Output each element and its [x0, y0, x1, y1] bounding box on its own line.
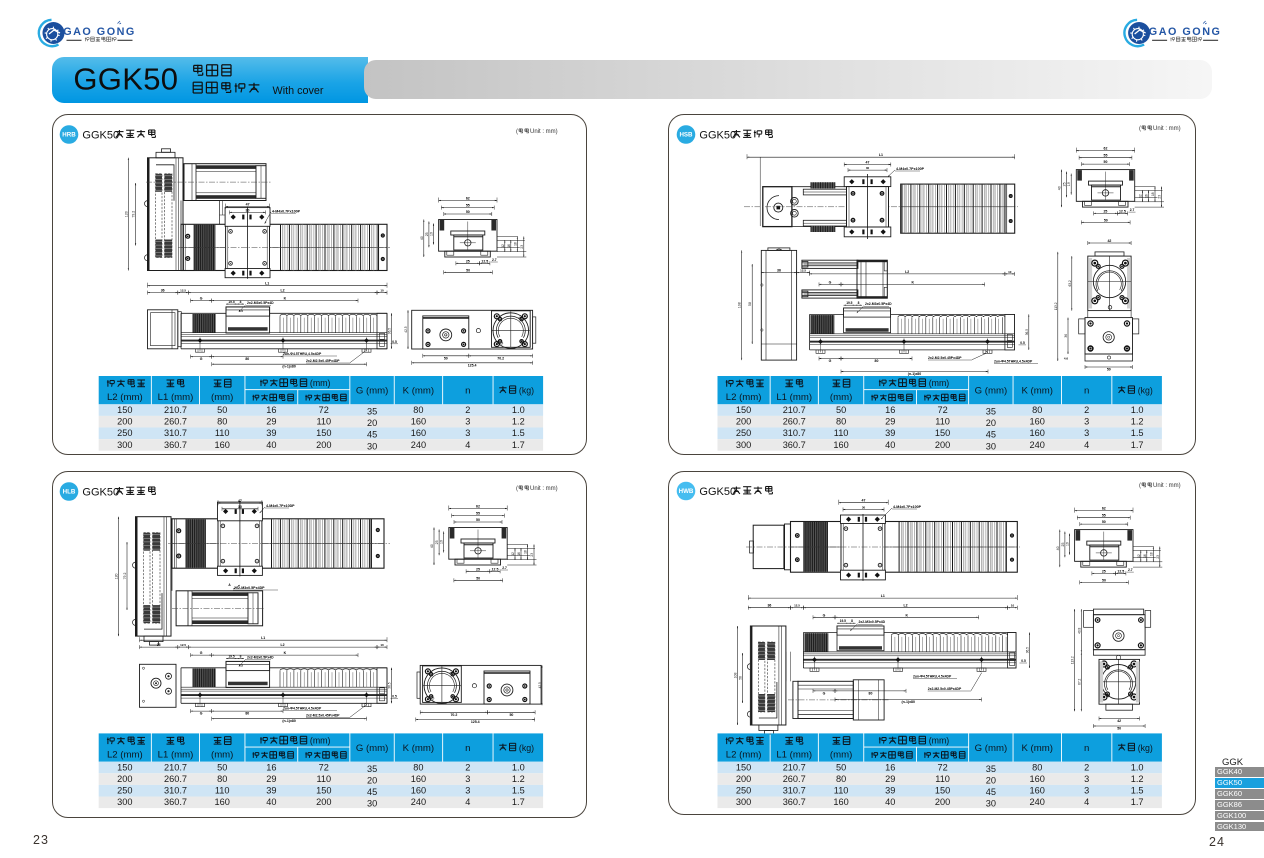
svg-text:1.0: 1.0	[1131, 762, 1144, 772]
svg-text:(mm): (mm)	[310, 736, 331, 746]
svg-text:G: G	[829, 359, 832, 363]
svg-text:16: 16	[1143, 554, 1147, 558]
svg-text:110: 110	[215, 786, 230, 796]
svg-text:45: 45	[986, 430, 996, 440]
svg-text:GGK50: GGK50	[699, 486, 736, 498]
svg-text:113.2: 113.2	[1054, 302, 1058, 310]
svg-text:30: 30	[986, 799, 996, 809]
svg-text:18: 18	[513, 242, 517, 246]
svg-text:12.5: 12.5	[1119, 209, 1126, 213]
svg-text:23: 23	[520, 245, 524, 249]
svg-text:80: 80	[1032, 405, 1042, 415]
svg-text:1.2: 1.2	[1131, 417, 1144, 427]
svg-text:4: 4	[465, 440, 470, 450]
svg-text:47: 47	[238, 499, 242, 503]
svg-text:125.4: 125.4	[468, 363, 477, 367]
svg-text:70.2: 70.2	[497, 356, 504, 360]
svg-text:2x2-M3x0.5Px4DP: 2x2-M3x0.5Px4DP	[234, 586, 265, 590]
svg-text:55: 55	[1104, 154, 1108, 158]
svg-text:16: 16	[266, 762, 276, 772]
svg-text:72: 72	[937, 762, 947, 772]
svg-text:G (mm): G (mm)	[975, 743, 1008, 754]
svg-text:1.5: 1.5	[1131, 786, 1144, 796]
svg-text:L1: L1	[265, 282, 269, 286]
svg-text:10: 10	[380, 643, 384, 647]
svg-text:80: 80	[836, 417, 846, 427]
svg-text:2.7: 2.7	[1130, 208, 1135, 212]
svg-text:10: 10	[380, 289, 384, 293]
svg-text:12.5: 12.5	[180, 643, 186, 647]
svg-text:200: 200	[316, 440, 331, 450]
svg-text:360.7: 360.7	[164, 440, 187, 450]
svg-text:0.5: 0.5	[1020, 341, 1025, 345]
svg-text:8: 8	[240, 655, 242, 659]
svg-text:40.8: 40.8	[1077, 627, 1081, 633]
svg-text:2x2-M3x0.5Px4D: 2x2-M3x0.5Px4D	[859, 620, 886, 624]
svg-text:55: 55	[476, 512, 480, 516]
svg-text:n: n	[465, 385, 470, 396]
svg-text:0.5: 0.5	[1021, 659, 1026, 663]
svg-text:L1 (mm): L1 (mm)	[776, 749, 812, 760]
svg-text:150: 150	[316, 428, 331, 438]
svg-text:G: G	[823, 613, 826, 617]
svg-text:36.5: 36.5	[388, 328, 392, 334]
svg-text:19.5: 19.5	[228, 655, 234, 659]
svg-text:GGK50: GGK50	[73, 61, 178, 96]
svg-text:12.5: 12.5	[481, 259, 488, 263]
svg-text:1.7: 1.7	[512, 440, 525, 450]
svg-text:L1: L1	[261, 636, 265, 640]
svg-text:1.5: 1.5	[512, 786, 525, 796]
svg-text:50: 50	[1107, 368, 1111, 372]
svg-text:30: 30	[862, 506, 866, 510]
svg-text:240: 240	[1030, 797, 1045, 807]
svg-text:200: 200	[736, 417, 751, 427]
svg-text:30: 30	[238, 505, 242, 509]
svg-text:G: G	[200, 651, 203, 655]
svg-text:19.5: 19.5	[228, 300, 234, 304]
svg-text:With cover: With cover	[273, 85, 324, 97]
svg-text:L2 (mm): L2 (mm)	[107, 749, 143, 760]
svg-text:4: 4	[465, 797, 470, 807]
svg-text:GGK50: GGK50	[82, 130, 119, 142]
svg-text:L2 (mm): L2 (mm)	[726, 749, 762, 760]
svg-text:(mm): (mm)	[310, 378, 331, 388]
svg-text:1.0: 1.0	[512, 762, 525, 772]
svg-text:150: 150	[935, 428, 950, 438]
svg-text:n: n	[1084, 385, 1089, 396]
svg-text:210.7: 210.7	[164, 405, 187, 415]
svg-text:23: 23	[1156, 555, 1160, 559]
svg-text:200: 200	[316, 797, 331, 807]
svg-text:25: 25	[425, 232, 429, 236]
svg-text:250: 250	[736, 786, 751, 796]
svg-text:K (mm): K (mm)	[403, 385, 434, 396]
svg-text:GGK50: GGK50	[699, 130, 736, 142]
svg-text:80: 80	[245, 357, 249, 361]
svg-text:50: 50	[476, 576, 480, 580]
svg-text:150: 150	[736, 405, 751, 415]
svg-text:L1 (mm): L1 (mm)	[776, 392, 812, 403]
svg-text:72: 72	[319, 762, 329, 772]
svg-text:110: 110	[935, 417, 950, 427]
svg-text:16: 16	[507, 244, 511, 248]
svg-text:113.2: 113.2	[1071, 656, 1075, 664]
svg-text:1.2: 1.2	[512, 417, 525, 427]
svg-text:72: 72	[937, 405, 947, 415]
svg-text:110: 110	[316, 774, 331, 784]
svg-text:36.5: 36.5	[1026, 647, 1030, 653]
svg-text:80: 80	[1032, 762, 1042, 772]
svg-text:30: 30	[367, 799, 377, 809]
svg-text:108: 108	[738, 302, 742, 308]
svg-text:58: 58	[739, 676, 743, 680]
svg-text:n: n	[1084, 743, 1089, 754]
svg-text:300: 300	[117, 440, 132, 450]
svg-text:10: 10	[1011, 604, 1015, 608]
svg-text:210.7: 210.7	[783, 762, 806, 772]
svg-text:35: 35	[986, 764, 996, 774]
svg-text:30: 30	[246, 208, 250, 212]
svg-text:360.7: 360.7	[164, 797, 187, 807]
svg-text:L1 (mm): L1 (mm)	[158, 392, 194, 403]
svg-text:(kg): (kg)	[519, 386, 534, 396]
svg-text:19: 19	[430, 232, 434, 236]
svg-text:18: 18	[524, 550, 528, 554]
svg-text:29: 29	[266, 774, 276, 784]
svg-text:4: 4	[1084, 797, 1089, 807]
svg-text:300: 300	[117, 797, 132, 807]
svg-text:50: 50	[836, 762, 846, 772]
svg-text:G (mm): G (mm)	[356, 385, 389, 396]
svg-text:2x2-M3x0.5Px4D: 2x2-M3x0.5Px4D	[865, 302, 892, 306]
svg-text:240: 240	[411, 797, 426, 807]
svg-text:29: 29	[266, 417, 276, 427]
svg-text:23: 23	[1158, 195, 1162, 199]
svg-text:39: 39	[266, 428, 276, 438]
svg-text:25: 25	[1061, 543, 1065, 547]
svg-text:25: 25	[476, 567, 480, 571]
svg-text:25: 25	[1102, 569, 1106, 573]
svg-text:2x2-M3x0.5Px4D: 2x2-M3x0.5Px4D	[247, 655, 274, 659]
svg-text:L2: L2	[903, 604, 907, 608]
svg-text:L2 (mm): L2 (mm)	[107, 392, 143, 403]
svg-text:16: 16	[517, 552, 521, 556]
svg-text:4-M4x0.7Px10DP: 4-M4x0.7Px10DP	[266, 504, 295, 508]
svg-text:108: 108	[734, 673, 738, 679]
svg-text:25: 25	[435, 540, 439, 544]
svg-text:62: 62	[1104, 147, 1108, 151]
svg-text:150: 150	[117, 762, 132, 772]
svg-text:8: 8	[851, 619, 853, 623]
svg-text:240: 240	[1030, 440, 1045, 450]
svg-text:240: 240	[411, 440, 426, 450]
svg-text:250: 250	[117, 786, 132, 796]
svg-text:310.7: 310.7	[164, 786, 187, 796]
svg-text:29: 29	[885, 774, 895, 784]
svg-text:160: 160	[215, 440, 230, 450]
svg-text:40: 40	[420, 236, 424, 240]
svg-text:110: 110	[935, 774, 950, 784]
svg-text:160: 160	[411, 417, 426, 427]
svg-text:2: 2	[1084, 405, 1089, 415]
svg-text:35: 35	[986, 407, 996, 417]
svg-text:80: 80	[217, 774, 227, 784]
svg-text:50: 50	[217, 762, 227, 772]
svg-text:3: 3	[465, 774, 470, 784]
svg-text:(kg): (kg)	[519, 743, 534, 753]
svg-text:80: 80	[836, 774, 846, 784]
svg-text:25: 25	[1103, 209, 1107, 213]
svg-text:200: 200	[935, 797, 950, 807]
svg-text:16: 16	[885, 762, 895, 772]
svg-text:K (mm): K (mm)	[1021, 743, 1052, 754]
svg-text:K: K	[912, 280, 915, 284]
svg-text:Unit : mm): Unit : mm)	[530, 486, 558, 492]
svg-text:1.0: 1.0	[1131, 405, 1144, 415]
svg-text:50: 50	[466, 210, 470, 214]
svg-text:50: 50	[1104, 160, 1108, 164]
svg-text:110: 110	[834, 428, 849, 438]
svg-text:300: 300	[736, 440, 751, 450]
svg-text:L2: L2	[281, 643, 285, 647]
svg-text:47: 47	[866, 161, 870, 165]
svg-text:50: 50	[466, 268, 470, 272]
svg-text:HRB: HRB	[62, 132, 76, 139]
svg-text:Unit : mm): Unit : mm)	[1153, 483, 1181, 489]
svg-text:200: 200	[117, 417, 132, 427]
svg-text:30: 30	[986, 441, 996, 451]
svg-text:110: 110	[215, 428, 230, 438]
svg-text:40: 40	[1058, 186, 1062, 190]
svg-text:12.5: 12.5	[1117, 569, 1124, 573]
svg-text:25: 25	[466, 259, 470, 263]
svg-text:K: K	[284, 297, 287, 301]
svg-text:18: 18	[1149, 552, 1153, 556]
svg-text:42.5: 42.5	[404, 326, 408, 332]
svg-text:30: 30	[866, 166, 870, 170]
svg-text:260.7: 260.7	[783, 774, 806, 784]
svg-text:4-M4x0.7Px100P: 4-M4x0.7Px100P	[896, 167, 925, 171]
svg-text:40: 40	[266, 440, 276, 450]
svg-text:36.5: 36.5	[1025, 329, 1029, 335]
svg-text:12: 12	[501, 244, 505, 248]
svg-text:120: 120	[124, 211, 128, 217]
svg-text:2x2-M2.5x0.45Px4DP: 2x2-M2.5x0.45Px4DP	[306, 359, 340, 363]
svg-text:55: 55	[466, 204, 470, 208]
svg-text:18: 18	[1151, 192, 1155, 196]
svg-text:(mm): (mm)	[211, 749, 233, 760]
svg-text:360.7: 360.7	[783, 440, 806, 450]
svg-text:1.2: 1.2	[1131, 774, 1144, 784]
svg-text:30: 30	[367, 441, 377, 451]
svg-text:1.7: 1.7	[1131, 797, 1144, 807]
svg-text:1.7: 1.7	[1131, 440, 1144, 450]
svg-text:39: 39	[266, 786, 276, 796]
svg-text:HLB: HLB	[63, 489, 76, 496]
svg-text:12.5: 12.5	[794, 604, 800, 608]
svg-text:L1 (mm): L1 (mm)	[158, 749, 194, 760]
svg-text:2un-Φ4.5THRU,4.5x4DP: 2un-Φ4.5THRU,4.5x4DP	[283, 352, 322, 356]
svg-text:40: 40	[885, 797, 895, 807]
svg-text:12: 12	[511, 552, 515, 556]
svg-text:19: 19	[1066, 542, 1070, 546]
svg-text:G: G	[200, 357, 203, 361]
svg-text:250: 250	[736, 428, 751, 438]
svg-text:20: 20	[367, 776, 377, 786]
svg-text:200: 200	[935, 440, 950, 450]
svg-text:63.2: 63.2	[1068, 280, 1072, 286]
svg-text:110: 110	[834, 786, 849, 796]
svg-text:160: 160	[411, 428, 426, 438]
svg-text:80: 80	[413, 405, 423, 415]
svg-text:50: 50	[509, 713, 513, 717]
svg-text:70.2: 70.2	[450, 713, 457, 717]
svg-text:160: 160	[1030, 428, 1045, 438]
svg-text:(kg): (kg)	[1138, 386, 1153, 396]
svg-text:35: 35	[367, 764, 377, 774]
svg-text:2x2-M3x0.5Px4D: 2x2-M3x0.5Px4D	[247, 301, 274, 305]
svg-text:2: 2	[1084, 762, 1089, 772]
svg-text:3: 3	[1084, 774, 1089, 784]
svg-text:39: 39	[885, 786, 895, 796]
svg-text:1.0: 1.0	[512, 405, 525, 415]
svg-text:210.7: 210.7	[164, 762, 187, 772]
svg-text:50: 50	[444, 356, 448, 360]
svg-text:HSB: HSB	[679, 132, 693, 139]
svg-text:(mm): (mm)	[929, 736, 950, 746]
svg-text:79.2: 79.2	[123, 573, 127, 580]
svg-text:36.5: 36.5	[388, 682, 392, 688]
svg-text:80: 80	[217, 417, 227, 427]
svg-text:3: 3	[1084, 428, 1089, 438]
svg-text:200: 200	[117, 774, 132, 784]
svg-text:12.5: 12.5	[180, 289, 186, 293]
svg-text:62: 62	[1102, 507, 1106, 511]
svg-text:G: G	[200, 297, 203, 301]
svg-text:Unit : mm): Unit : mm)	[530, 129, 558, 135]
svg-text:2.7: 2.7	[1128, 568, 1133, 572]
svg-text:300: 300	[736, 797, 751, 807]
svg-text:12.5: 12.5	[492, 567, 499, 571]
svg-text:4-M4x0.7Px100P: 4-M4x0.7Px100P	[272, 210, 301, 214]
svg-text:47: 47	[862, 499, 866, 503]
svg-text:2.7: 2.7	[492, 258, 497, 262]
svg-text:10: 10	[1008, 270, 1012, 274]
svg-text:42.5: 42.5	[538, 682, 542, 688]
svg-text:GGK50: GGK50	[82, 487, 119, 499]
svg-text:3: 3	[1084, 417, 1089, 427]
svg-text:45: 45	[986, 787, 996, 797]
svg-text:55: 55	[1102, 514, 1106, 518]
svg-text:19.5: 19.5	[846, 301, 852, 305]
svg-text:2: 2	[465, 405, 470, 415]
svg-text:58: 58	[748, 302, 752, 306]
svg-text:2x2-M2.5x0.45Px4DP: 2x2-M2.5x0.45Px4DP	[928, 687, 962, 691]
svg-text:25: 25	[1063, 182, 1067, 186]
svg-text:29: 29	[885, 417, 895, 427]
svg-text:360.7: 360.7	[783, 797, 806, 807]
svg-text:80: 80	[413, 762, 423, 772]
svg-text:160: 160	[1030, 417, 1045, 427]
svg-text:1.5: 1.5	[1131, 428, 1144, 438]
svg-text:2un-Φ4.5THRU,4.5x4DP: 2un-Φ4.5THRU,4.5x4DP	[994, 360, 1033, 364]
svg-text:45: 45	[367, 430, 377, 440]
svg-text:8: 8	[240, 300, 242, 304]
svg-text:62: 62	[466, 197, 470, 201]
svg-text:210.7: 210.7	[783, 405, 806, 415]
svg-text:36: 36	[777, 269, 781, 273]
svg-text:40: 40	[885, 440, 895, 450]
svg-text:4.6: 4.6	[1064, 357, 1069, 361]
svg-text:50: 50	[1104, 218, 1108, 222]
svg-text:160: 160	[833, 440, 848, 450]
svg-text:3: 3	[465, 428, 470, 438]
svg-text:(n-1)x80: (n-1)x80	[908, 372, 921, 376]
svg-text:(: (	[1139, 483, 1141, 489]
svg-text:G: G	[829, 280, 832, 284]
svg-text:L2: L2	[281, 289, 285, 293]
svg-text:(kg): (kg)	[1138, 743, 1153, 753]
svg-text:3: 3	[465, 786, 470, 796]
svg-text:80: 80	[869, 691, 873, 695]
svg-text:20: 20	[986, 418, 996, 428]
svg-text:50: 50	[476, 518, 480, 522]
svg-text:4-M4x0.7Px100P: 4-M4x0.7Px100P	[893, 505, 922, 509]
svg-text:50: 50	[1102, 578, 1106, 582]
svg-text:3: 3	[465, 417, 470, 427]
svg-text:(n-1)x80: (n-1)x80	[282, 365, 295, 369]
svg-text:16: 16	[1145, 194, 1149, 198]
svg-text:6.5: 6.5	[239, 309, 244, 313]
svg-text:50: 50	[1117, 727, 1121, 731]
svg-text:62: 62	[476, 505, 480, 509]
svg-text:8: 8	[858, 301, 860, 305]
svg-text:(mm): (mm)	[211, 392, 233, 403]
svg-text:50: 50	[1102, 520, 1106, 524]
svg-text:150: 150	[935, 786, 950, 796]
svg-text:(: (	[1139, 126, 1141, 132]
svg-text:1.7: 1.7	[512, 797, 525, 807]
svg-text:K: K	[284, 651, 287, 655]
svg-text:67.2: 67.2	[1077, 678, 1081, 684]
svg-text:2x2-M2.5x0.45Px4DP: 2x2-M2.5x0.45Px4DP	[928, 356, 962, 360]
svg-text:HWB: HWB	[679, 488, 694, 495]
svg-text:160: 160	[1030, 774, 1045, 784]
svg-text:19: 19	[440, 540, 444, 544]
svg-text:0.5: 0.5	[392, 694, 397, 698]
svg-text:G: G	[823, 691, 826, 695]
svg-text:0.5: 0.5	[392, 340, 397, 344]
svg-text:K: K	[906, 613, 909, 617]
svg-text:1.5: 1.5	[512, 428, 525, 438]
svg-text:3: 3	[1084, 786, 1089, 796]
svg-text:19: 19	[1067, 182, 1071, 186]
svg-text:35: 35	[367, 407, 377, 417]
svg-text:36: 36	[1064, 334, 1068, 338]
svg-text:(: (	[516, 129, 518, 135]
svg-text:150: 150	[316, 786, 331, 796]
svg-text:L1: L1	[879, 153, 883, 157]
svg-text:(n-1)x80: (n-1)x80	[282, 719, 295, 723]
svg-text:36: 36	[161, 289, 165, 293]
svg-text:42: 42	[1107, 239, 1111, 243]
svg-text:G (mm): G (mm)	[975, 385, 1008, 396]
svg-text:GAO GONG: GAO GONG	[1149, 26, 1222, 38]
svg-text:2x2-M2.5x0.45Px4DP: 2x2-M2.5x0.45Px4DP	[306, 714, 340, 718]
svg-text:G (mm): G (mm)	[356, 743, 389, 754]
svg-text:19.5: 19.5	[840, 619, 846, 623]
